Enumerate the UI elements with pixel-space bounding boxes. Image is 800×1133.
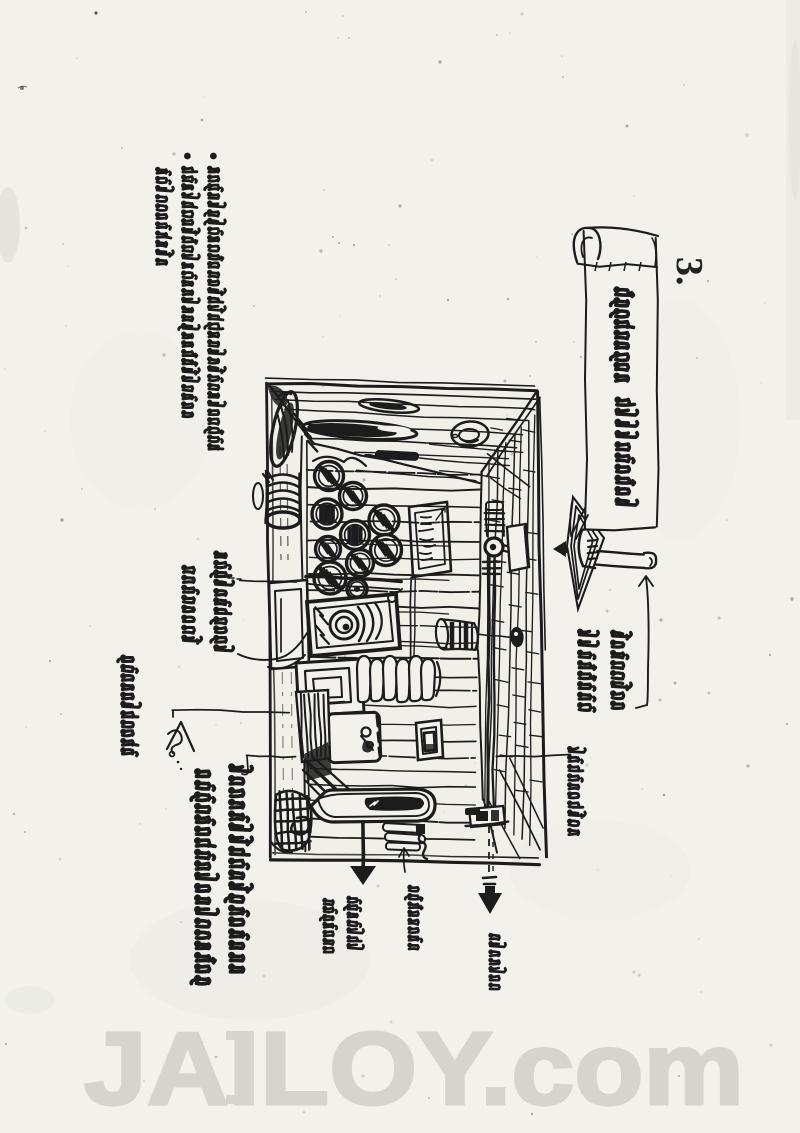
svg-text:3.: 3.: [668, 257, 710, 286]
svg-text:JAILOY.com: JAILOY.com: [84, 1011, 744, 1126]
